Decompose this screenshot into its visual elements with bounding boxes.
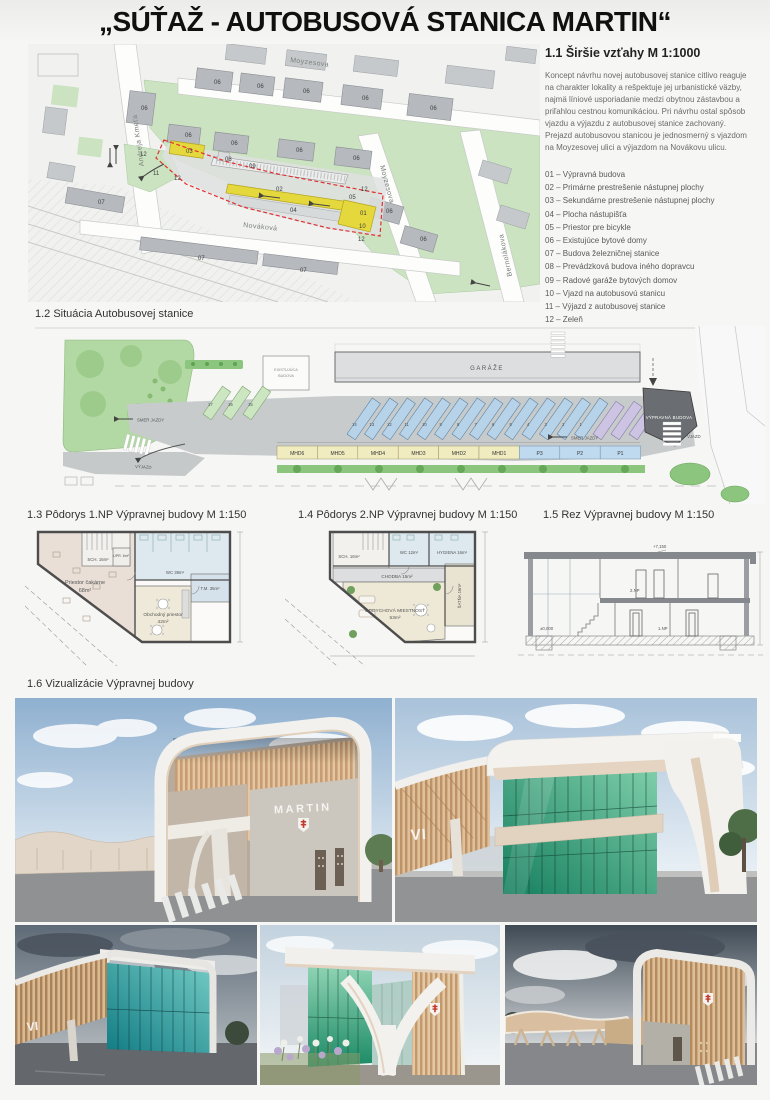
map-label: 04 xyxy=(290,208,297,214)
map-label: 08 xyxy=(225,157,232,163)
legend-item: 02 – Primárne prestrešenie nástupnej plo… xyxy=(545,181,760,194)
mark-roof: +7,150 xyxy=(653,544,667,549)
map-label: 07 xyxy=(300,268,307,274)
map-label: 06 xyxy=(420,237,427,243)
map-label: 12 xyxy=(361,187,368,193)
bay-number: 15 xyxy=(248,402,253,407)
smer-jazdy-label-2: SMER JAZDY xyxy=(571,436,598,441)
room-upr: UPR. 6m² xyxy=(113,554,130,558)
map-label: 12 xyxy=(358,237,365,243)
svg-text:68m²: 68m² xyxy=(79,588,92,594)
render-main-side: VI xyxy=(395,698,757,922)
map-label: 06 xyxy=(257,84,264,90)
map-label: 10 xyxy=(359,224,366,230)
render-main-front: MARTIN xyxy=(15,698,392,922)
competition-poster: „SÚŤAŽ - AUTOBUSOVÁ STANICA MARTIN“ xyxy=(0,0,770,1100)
bay-number: 13 xyxy=(370,422,375,427)
floorplan-2np: SCH. 16m² WC 12m² HYGIENA 16m² CHODBA 15… xyxy=(285,524,511,666)
legend-item: 11 – Výjazd z autobusovej stanice xyxy=(545,300,760,313)
stand-label: MHD5 xyxy=(331,451,345,457)
legend-item: 03 – Sekundárne prestrešenie nástupnej p… xyxy=(545,194,760,207)
map-label: 06 xyxy=(430,106,437,112)
vjazd-label: VJAZD xyxy=(687,434,701,439)
stand-label: P2 xyxy=(577,451,583,457)
svg-text:42m²: 42m² xyxy=(158,619,169,625)
map-label: 06 xyxy=(185,133,192,139)
legend-item: 08 – Prevádzková budova iného dopravcu xyxy=(545,260,760,273)
poster-title: „SÚŤAŽ - AUTOBUSOVÁ STANICA MARTIN“ xyxy=(0,0,770,38)
section-1-4-heading: 1.4 Pôdorys 2.NP Výpravnej budovy M 1:15… xyxy=(298,509,517,521)
map-label: 06 xyxy=(386,209,393,215)
map-label: 06 xyxy=(231,141,238,147)
bay-number: 12 xyxy=(387,422,392,427)
stand-label: P3 xyxy=(537,451,543,457)
section-1-6-heading: 1.6 Vizualizácie Výpravnej budovy xyxy=(27,678,194,690)
map-label: 12 xyxy=(174,176,181,182)
bay-number: 16 xyxy=(228,402,233,407)
situation-plan: 1716151413121110987654321 MHD6MHD5MHD4MH… xyxy=(35,326,765,504)
legend-item: 12 – Zeleň xyxy=(545,313,760,326)
floorplan-1np: Priestor čakárne 68m² WC 39m² T.M. 35m² … xyxy=(25,524,257,666)
stand-label: MHD1 xyxy=(492,451,506,457)
existujuca-line1: EXISTUJÚCA xyxy=(274,367,298,372)
map-label: 01 xyxy=(360,211,367,217)
section-1-2-heading: 1.2 Situácia Autobusovej stanice xyxy=(35,308,193,320)
stand-label: MHD6 xyxy=(290,451,304,457)
section-1-1-heading: 1.1 Širšie vzťahy M 1:1000 xyxy=(545,46,760,60)
vi-sign-small: VI xyxy=(26,1019,39,1034)
section-1-3-heading: 1.3 Pôdorys 1.NP Výpravnej budovy M 1:15… xyxy=(27,509,246,521)
room-satna: ŠATŇA 16m² xyxy=(457,583,462,608)
render-night-canopy: VI xyxy=(15,925,257,1085)
concept-paragraph: Koncept návrhu novej autobusovej stanice… xyxy=(545,70,750,154)
map-label: 06 xyxy=(296,148,303,154)
section-1-1-text: 1.1 Širšie vzťahy M 1:1000 Koncept návrh… xyxy=(545,46,760,326)
room-wc-2np: WC 12m² xyxy=(400,550,419,555)
section-1-5-heading: 1.5 Rez Výpravnej budovy M 1:150 xyxy=(543,509,714,521)
bay-number: 10 xyxy=(422,422,427,427)
map-label: 02 xyxy=(276,187,283,193)
mark-2np: 2.NP xyxy=(630,588,640,593)
garaze-label: GARÁŽE xyxy=(470,364,504,372)
render-dramatic-sky xyxy=(505,925,757,1085)
room-sch-1np: SCH. 16m² xyxy=(87,557,109,562)
map-label: 07 xyxy=(98,200,105,206)
map-label: 03 xyxy=(186,149,193,155)
map-label: 09 xyxy=(249,164,256,170)
stand-label: MHD2 xyxy=(452,451,466,457)
map-label: 11 xyxy=(153,171,160,177)
map-label: 12 xyxy=(140,152,147,158)
legend-item: 09 – Radové garáže bytových domov xyxy=(545,274,760,287)
map-label: 06 xyxy=(303,89,310,95)
site-map-1-1: MoyzesovaMoyzesovaAndreja KmeťaBernoláko… xyxy=(28,44,540,302)
room-chodba: CHODBA 15m² xyxy=(381,574,413,579)
map-label: 06 xyxy=(353,156,360,162)
legend-list: 01 – Výpravná budova02 – Primárne prestr… xyxy=(545,168,760,326)
room-hygiena: HYGIENA 16m² xyxy=(437,550,468,555)
mark-zero: ±0,000 xyxy=(540,626,554,631)
vyjazd-label: VÝJAZD xyxy=(135,464,152,470)
stands-strip: MHD6MHD5MHD4MHD3MHD2MHD1P3P2P1 xyxy=(277,446,641,459)
bay-number: 11 xyxy=(405,422,410,427)
legend-item: 01 – Výpravná budova xyxy=(545,168,760,181)
map-label: 05 xyxy=(349,195,356,201)
legend-item: 05 – Priestor pre bicykle xyxy=(545,221,760,234)
legend-item: 07 – Budova železničnej stanice xyxy=(545,247,760,260)
room-sch-2np: SCH. 16m² xyxy=(338,554,360,559)
room-obchod: Obchodný priestor xyxy=(143,612,183,618)
stand-label: P1 xyxy=(617,451,623,457)
map-label: 06 xyxy=(214,80,221,86)
room-wc-1np: WC 39m² xyxy=(166,570,185,575)
render-column-flowers xyxy=(260,925,500,1085)
stand-label: MHD3 xyxy=(411,451,425,457)
existujuca-line2: BUDOVA xyxy=(278,374,294,378)
map-label: 06 xyxy=(362,96,369,102)
building-section: +7,150 2.NP 1.NP ±0,000 xyxy=(518,524,763,666)
svg-text:53m²: 53m² xyxy=(390,615,401,621)
vypravna-budova-label: VÝPRAVNÁ BUDOVA xyxy=(646,415,693,420)
room-cakaren: Priestor čakárne xyxy=(65,580,105,586)
bay-number: 17 xyxy=(208,402,213,407)
legend-item: 10 – Vjazd na autobusovú stanicu xyxy=(545,287,760,300)
legend-item: 04 – Plocha nástupišťa xyxy=(545,208,760,221)
vi-sign: VI xyxy=(410,826,427,844)
mark-1np: 1.NP xyxy=(658,626,668,631)
room-tm: T.M. 35m² xyxy=(200,586,220,591)
legend-item: 06 – Existujúce bytové domy xyxy=(545,234,760,247)
title-bar: „SÚŤAŽ - AUTOBUSOVÁ STANICA MARTIN“ xyxy=(0,0,770,44)
map-label: 07 xyxy=(198,256,205,262)
map-label: 06 xyxy=(141,106,148,112)
smer-jazdy-label-1: SMER JAZDY xyxy=(137,418,164,423)
stand-label: MHD4 xyxy=(371,451,385,457)
bay-number: 14 xyxy=(352,422,357,427)
